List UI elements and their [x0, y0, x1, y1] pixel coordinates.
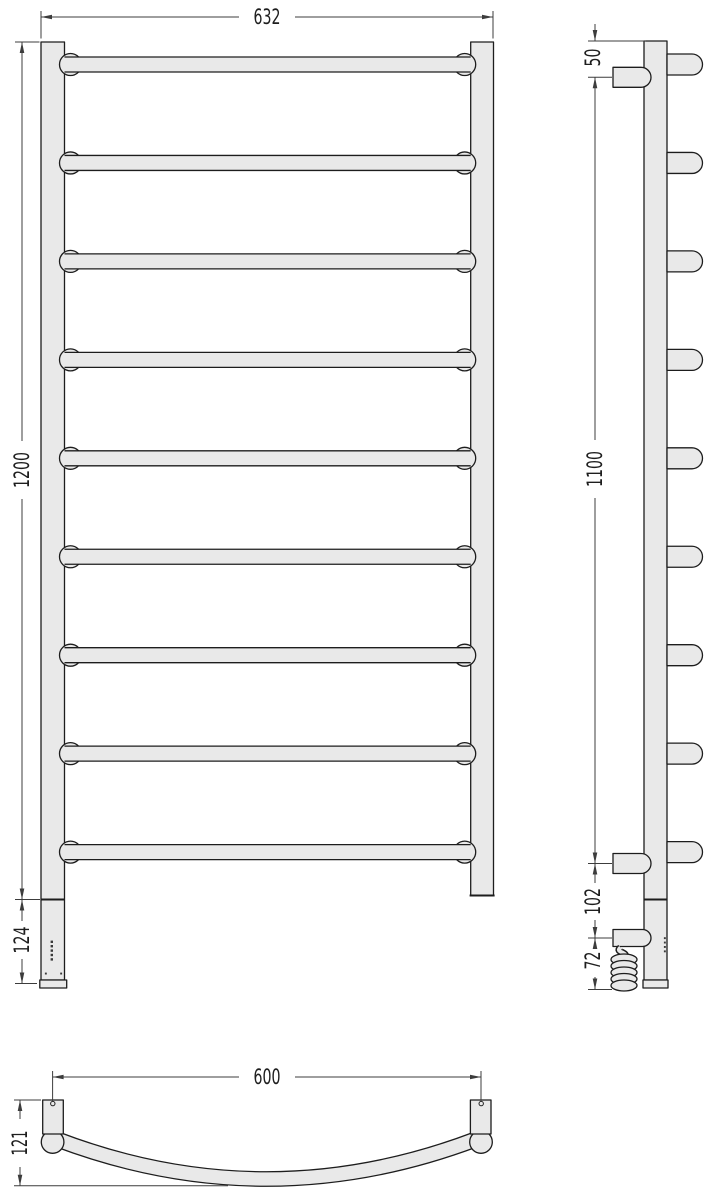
side-rung-stub: [667, 448, 703, 469]
front-rung: [60, 841, 476, 863]
side-post-bar: [644, 41, 667, 980]
side-rung-stub: [667, 645, 703, 666]
dim-outlet-offset: 102: [581, 864, 612, 939]
front-led-dot: [51, 949, 53, 951]
side-rung-stub: [667, 842, 703, 863]
side-cable-outlet-box: [613, 930, 651, 947]
dim-bracket-top-offset-label: 50: [581, 49, 605, 67]
front-screw-dot-left: [45, 973, 47, 975]
dim-rail-span: 600: [53, 1065, 481, 1102]
front-rung: [60, 743, 476, 765]
dimension-arrow: [53, 1075, 64, 1080]
front-screw-dot-right: [60, 973, 62, 975]
dimension-arrow: [482, 15, 493, 20]
front-led-dot: [51, 941, 53, 943]
dim-outlet-offset-label: 102: [581, 888, 605, 915]
dim-overall-width: 632: [41, 5, 493, 39]
dim-bracket-spacing: 1100: [583, 77, 612, 863]
dim-cable-drop: 72: [581, 938, 612, 990]
front-rung: [60, 250, 476, 272]
side-rung-stub: [667, 546, 703, 567]
dim-cable-drop-label: 72: [581, 952, 605, 970]
dimension-arrow: [593, 853, 598, 864]
side-led-dot: [664, 937, 666, 939]
front-bottom-cap: [40, 980, 67, 988]
front-led-dot: [51, 945, 53, 947]
dimension-arrow: [593, 938, 598, 949]
side-view: [611, 41, 703, 991]
dimension-arrow: [18, 1100, 23, 1111]
side-wall-bracket-bottom: [613, 854, 651, 874]
front-left-post: [41, 42, 65, 980]
dimension-arrow: [41, 15, 52, 20]
dimension-arrow: [593, 864, 598, 875]
side-rung-stub: [667, 743, 703, 764]
front-rung: [60, 447, 476, 469]
side-rung-stub: [667, 349, 703, 370]
dimension-arrow: [20, 900, 25, 911]
front-led-dot: [51, 954, 53, 956]
dimension-arrow: [20, 973, 25, 984]
dim-rail-span-label: 600: [254, 1065, 281, 1089]
dimension-arrow: [593, 30, 598, 41]
bottom-mount-hole-right: [479, 1101, 483, 1105]
dimensions: 632120012450110010272600121: [8, 5, 646, 1186]
dimension-arrow: [470, 1075, 481, 1080]
technical-drawing-sheet: 632120012450110010272600121: [0, 0, 714, 1200]
bottom-mount-hole-left: [51, 1101, 55, 1105]
cable-coil-ring: [611, 980, 637, 991]
dimension-arrow: [593, 927, 598, 938]
front-rungs: [60, 54, 476, 864]
front-rung: [60, 546, 476, 568]
front-rung: [60, 152, 476, 174]
dim-rail-depth-label: 121: [8, 1131, 32, 1156]
dimension-arrow: [20, 889, 25, 900]
front-rung: [60, 644, 476, 666]
dimension-arrow: [593, 979, 598, 990]
power-cable-coil: [611, 954, 637, 991]
side-bottom-cap: [643, 980, 668, 988]
front-rung: [60, 349, 476, 371]
front-led-dot: [51, 958, 53, 960]
side-rung-stubs: [667, 54, 703, 863]
side-rung-stub: [667, 251, 703, 272]
front-view: [40, 42, 495, 988]
dim-overall-height-label: 1200: [10, 452, 34, 488]
front-right-post: [471, 42, 494, 896]
dim-overall-height: 1200: [10, 42, 40, 900]
dimension-arrow: [18, 1175, 23, 1186]
side-rung-stub: [667, 152, 702, 173]
bottom-curved-rail: [55, 1133, 478, 1187]
front-rung: [60, 54, 476, 76]
dim-control-height-label: 124: [10, 927, 34, 954]
bottom-view: [41, 1100, 492, 1186]
side-led-dot: [664, 950, 666, 952]
dim-overall-width-label: 632: [254, 5, 281, 29]
dim-bracket-spacing-label: 1100: [583, 451, 607, 487]
side-led-dot: [664, 942, 666, 944]
towel-rail-drawing: 632120012450110010272600121: [0, 0, 714, 1200]
side-wall-bracket-top: [613, 67, 651, 87]
dimension-arrow: [20, 42, 25, 53]
side-rung-stub: [667, 54, 703, 75]
side-led-dot: [664, 946, 666, 948]
dim-control-height: 124: [10, 900, 37, 984]
